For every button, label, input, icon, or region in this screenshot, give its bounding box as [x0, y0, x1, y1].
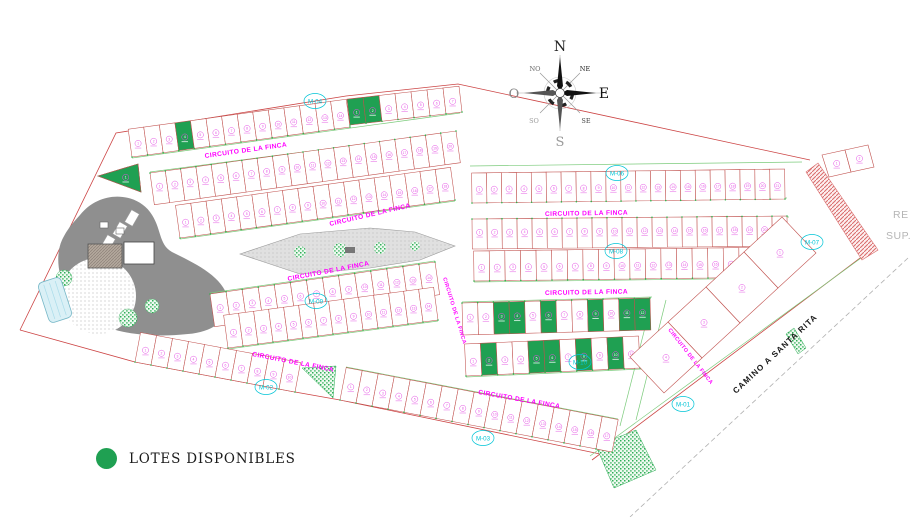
lot-number: 3: [251, 301, 253, 305]
lot-area-text: [291, 126, 297, 127]
lot-area-text: [580, 192, 586, 193]
lot-area-text: [470, 365, 476, 366]
lot-number: 2: [366, 388, 368, 392]
survey-tick: [363, 143, 365, 145]
lot-number: 3: [703, 321, 705, 325]
survey-tick: [739, 199, 741, 201]
lot-area-text: [275, 330, 281, 331]
survey-tick: [520, 280, 522, 282]
lot-area-text: [353, 117, 359, 118]
lot-area-text: [449, 106, 455, 107]
lot-number: 12: [397, 308, 401, 312]
survey-tick: [707, 277, 709, 279]
lot-area-text: [410, 312, 416, 313]
lot-area-text: [856, 163, 862, 164]
lot-number: 2: [161, 351, 163, 355]
lot-number: 10: [609, 312, 613, 316]
lot-area-text: [230, 336, 236, 337]
lot-area-text: [386, 159, 392, 160]
survey-tick: [582, 279, 584, 281]
survey-tick: [576, 370, 578, 372]
survey-tick: [621, 217, 623, 219]
lot-area-text: [572, 434, 578, 435]
street-label-circuito: CIRCUITO DE LA FINCA: [545, 210, 628, 218]
lot-number: 8: [246, 127, 248, 131]
survey-tick: [524, 301, 526, 303]
lot-number: 10: [367, 312, 371, 316]
edge-text-line2: SUP.: [886, 230, 911, 242]
survey-tick: [317, 335, 319, 337]
lot-number: 18: [418, 149, 422, 153]
lot-number: 4: [524, 230, 526, 234]
lot-number: 4: [665, 356, 667, 360]
survey-tick: [273, 284, 275, 286]
lot-number: 11: [509, 416, 513, 420]
lot-number: 10: [493, 413, 497, 417]
lot-number: 7: [446, 403, 448, 407]
lot-number: 10: [321, 201, 325, 205]
survey-tick: [294, 391, 296, 393]
survey-tick: [504, 280, 506, 282]
lot-number: 8: [266, 170, 268, 174]
lot-number: 12: [307, 118, 311, 122]
lot-area-text: [536, 236, 542, 237]
survey-tick: [318, 149, 320, 151]
survey-tick: [338, 275, 340, 277]
survey-tick: [365, 122, 367, 124]
lot-area-text: [491, 193, 497, 194]
lot-area-text: [198, 224, 204, 225]
lot-area-text: [521, 236, 527, 237]
lot-number: 1: [185, 220, 187, 224]
lot-number: 7: [574, 264, 576, 268]
lot-number: 12: [643, 229, 647, 233]
lot-number: 1: [356, 111, 358, 115]
lot-number: 19: [748, 228, 752, 232]
lot-area-text: [561, 319, 567, 320]
survey-tick: [347, 331, 349, 333]
lot-number: 7: [567, 355, 569, 359]
lot-area-text: [508, 422, 514, 423]
survey-tick: [198, 373, 200, 375]
survey-tick: [257, 343, 259, 345]
survey-tick: [149, 172, 151, 174]
lot-area-text: [320, 207, 326, 208]
lot-area-text: [588, 270, 594, 271]
lot-area-text: [290, 328, 296, 329]
survey-tick: [272, 155, 274, 157]
survey-tick: [602, 298, 604, 300]
lot-number: 8: [338, 316, 340, 320]
survey-tick: [209, 293, 211, 295]
lot-area-text: [122, 182, 128, 183]
lot-number: 14: [671, 185, 675, 189]
lot-area-text: [270, 378, 276, 379]
survey-tick: [635, 200, 637, 202]
lot-number: 15: [573, 428, 577, 432]
legend-label: LOTES DISPONIBLES: [129, 451, 296, 467]
lot-number: 13: [323, 116, 327, 120]
lot-number: 15: [372, 155, 376, 159]
lot-number: 4: [278, 324, 280, 328]
survey-tick: [563, 442, 565, 444]
survey-tick: [166, 367, 168, 369]
lot-area-text: [565, 361, 571, 362]
lot-number: 8: [462, 407, 464, 411]
survey-tick: [332, 333, 334, 335]
survey-tick: [536, 279, 538, 281]
lot-area-text: [260, 332, 266, 333]
tree: [374, 242, 386, 254]
survey-tick: [439, 201, 441, 203]
survey-tick: [256, 139, 258, 141]
survey-tick: [179, 237, 181, 239]
lot-area-text: [297, 300, 303, 301]
survey-tick: [680, 200, 682, 202]
lot-number: 3: [177, 354, 179, 358]
lot-area-text: [506, 236, 512, 237]
lot-number: 3: [189, 180, 191, 184]
lot-number: 2: [488, 359, 490, 363]
survey-tick: [413, 117, 415, 119]
survey-tick: [381, 120, 383, 122]
compass-e: E: [599, 86, 609, 102]
lot-number: 7: [250, 172, 252, 176]
survey-tick: [354, 273, 356, 275]
survey-tick: [618, 298, 620, 300]
lot-area-text: [656, 235, 662, 236]
lot-area-text: [476, 416, 482, 417]
survey-tick: [551, 279, 553, 281]
survey-tick: [397, 119, 399, 121]
lot-number: 10: [288, 375, 292, 379]
lot-number: 6: [430, 400, 432, 404]
survey-tick: [696, 216, 698, 218]
survey-tick: [302, 133, 304, 135]
lot-number: 17: [403, 151, 407, 155]
survey-tick: [489, 280, 491, 282]
lot-number: 12: [641, 311, 645, 315]
survey-tick: [560, 371, 562, 373]
lot-area-text: [433, 107, 439, 108]
survey-tick: [499, 430, 501, 432]
lot-number: 11: [337, 199, 341, 203]
lot-number: 1: [836, 162, 838, 166]
survey-tick: [471, 218, 473, 220]
survey-tick: [429, 115, 431, 117]
survey-tick: [645, 278, 647, 280]
lot-number: 9: [348, 287, 350, 291]
lot-area-text: [197, 139, 203, 140]
lot-number: 6: [554, 230, 556, 234]
lot-area-text: [524, 425, 530, 426]
lot-number: 18: [443, 185, 447, 189]
lot-area-text: [486, 365, 492, 366]
lot-area-text: [279, 174, 285, 175]
lot-number: 11: [627, 186, 631, 190]
lot-number: 7: [241, 366, 243, 370]
survey-tick: [165, 170, 167, 172]
survey-tick: [256, 227, 258, 229]
lot-area-text: [460, 413, 466, 414]
survey-tick: [501, 202, 503, 204]
survey-tick: [318, 130, 320, 132]
lot-area-text: [536, 193, 542, 194]
svg-text:M-10: M-10: [573, 360, 588, 367]
lot-number: 9: [595, 312, 597, 316]
survey-tick: [317, 218, 319, 220]
lot-area-text: [294, 172, 300, 173]
lot-number: 4: [184, 135, 186, 139]
lot-area-text: [476, 194, 482, 195]
lot-area-text: [355, 163, 361, 164]
lot-area-text: [685, 191, 691, 192]
lot-area-text: [190, 363, 196, 364]
lot-number: 7: [569, 230, 571, 234]
lot-area-text: [305, 210, 311, 211]
lot-block: 1234567891011: [465, 336, 641, 377]
survey-tick: [636, 217, 638, 219]
lot-area-text: [588, 437, 594, 438]
lot-number: 5: [543, 265, 545, 269]
lot-number: 5: [420, 103, 422, 107]
lot-area-text: [135, 148, 141, 149]
lot-number: 21: [775, 184, 779, 188]
survey-tick: [769, 198, 771, 200]
lot-area-text: [364, 394, 370, 395]
lot-number: 11: [625, 311, 629, 315]
lot-number: 1: [779, 251, 781, 255]
survey-tick: [515, 433, 517, 435]
lot-area-text: [174, 360, 180, 361]
lot-number: 7: [452, 100, 454, 104]
survey-tick: [434, 261, 436, 263]
lot-number: 4: [520, 357, 522, 361]
lot-number: 10: [613, 229, 617, 233]
survey-tick: [754, 199, 756, 201]
survey-tick: [226, 162, 228, 164]
survey-tick: [162, 152, 164, 154]
lot-area-text: [597, 360, 603, 361]
lot-area-text: [206, 366, 212, 367]
lot-area-text: [410, 284, 416, 285]
lot-area-text: [172, 188, 178, 189]
lot-number: 2: [235, 303, 237, 307]
lot-area-text: [378, 289, 384, 290]
lot-area-text: [286, 381, 292, 382]
lot-number: 13: [411, 278, 415, 282]
lot-area-text: [187, 186, 193, 187]
lot-area-text: [385, 113, 391, 114]
survey-tick: [362, 329, 364, 331]
lot-number: 10: [612, 186, 616, 190]
survey-tick: [150, 364, 152, 366]
survey-tick: [209, 145, 211, 147]
lot-area-text: [701, 327, 707, 328]
lot-block: 1: [98, 164, 141, 192]
lot-area-text: [494, 271, 500, 272]
survey-tick: [598, 279, 600, 281]
lot-number: 12: [395, 281, 399, 285]
lot-area-text: [610, 192, 616, 193]
survey-tick: [595, 448, 597, 450]
lot-area-text: [478, 272, 484, 273]
lot-area-text: [447, 151, 453, 152]
survey-tick: [387, 408, 389, 410]
lot-number: 6: [235, 174, 237, 178]
lot-number: 10: [614, 353, 618, 357]
lot-area-text: [521, 193, 527, 194]
lot-area-text: [581, 236, 587, 237]
survey-tick: [486, 202, 488, 204]
lot-area-text: [394, 287, 400, 288]
compass-ne: NE: [580, 65, 591, 73]
survey-tick: [240, 141, 242, 143]
lot-number: 3: [504, 358, 506, 362]
compass-arm-east: [562, 90, 596, 96]
svg-text:M-06: M-06: [610, 171, 625, 178]
lot-area-text: [335, 205, 341, 206]
lot-number: 11: [292, 120, 296, 124]
lot-number: 9: [262, 125, 264, 129]
survey-tick: [692, 277, 694, 279]
lot-area-text: [681, 269, 687, 270]
block-label: M-01: [672, 397, 694, 412]
lot-area-text: [729, 190, 735, 191]
lot-number: 1: [219, 306, 221, 310]
survey-tick: [445, 113, 447, 115]
lot-number: 10: [295, 166, 299, 170]
compass-s: S: [556, 135, 565, 150]
lot-block: 123456789101112131415161718192021: [471, 169, 786, 204]
survey-tick: [660, 278, 662, 280]
legend: LOTES DISPONIBLES: [96, 448, 296, 469]
survey-tick: [579, 445, 581, 447]
lot-area-text: [337, 120, 343, 121]
lot-number: 7: [568, 186, 570, 190]
survey-tick: [528, 372, 530, 374]
lot-area-text: [530, 320, 536, 321]
lot-number: 13: [341, 159, 345, 163]
lot-number: 5: [538, 187, 540, 191]
lot-area-text: [275, 128, 281, 129]
survey-tick: [349, 126, 351, 128]
survey-tick: [786, 215, 788, 217]
lot-number: 6: [215, 131, 217, 135]
survey-tick: [419, 414, 421, 416]
lot-number: 6: [548, 313, 550, 317]
lot-area-text: [371, 161, 377, 162]
svg-text:M-04: M-04: [308, 99, 323, 106]
lot-area-text: [249, 307, 255, 308]
lot-number: 13: [658, 229, 662, 233]
lot-area-text: [401, 111, 407, 112]
survey-tick: [531, 218, 533, 220]
survey-tick: [651, 216, 653, 218]
survey-tick: [134, 361, 136, 363]
survey-tick: [424, 203, 426, 205]
survey-tick: [210, 164, 212, 166]
survey-tick: [339, 399, 341, 401]
lot-area-text: [401, 157, 407, 158]
lot-number: 3: [388, 107, 390, 111]
survey-tick: [302, 337, 304, 339]
lot-area-text: [395, 314, 401, 315]
survey-tick: [606, 217, 608, 219]
lot-area-text: [492, 419, 498, 420]
clubhouse-annex: [124, 242, 154, 264]
lot-number: 10: [363, 285, 367, 289]
lot-area-text: [274, 214, 280, 215]
lot-area-text: [572, 270, 578, 271]
lot-rows: 1234567891011121314123456712345678910111…: [98, 86, 874, 453]
lot-number: 13: [367, 195, 371, 199]
survey-tick: [676, 278, 678, 280]
lot-area-text: [265, 305, 271, 306]
lot-area-text: [396, 400, 402, 401]
survey-tick: [710, 199, 712, 201]
lot-area-text: [639, 317, 645, 318]
lot-area-text: [759, 190, 765, 191]
street-label-camino: CAMINO A SANTA RITA: [731, 312, 819, 395]
survey-tick: [349, 124, 351, 126]
compass-rose: N S E O NE NO SE SO: [509, 39, 609, 150]
lot-number: 11: [636, 264, 640, 268]
survey-tick: [180, 168, 182, 170]
lot-area-text: [427, 193, 433, 194]
lot-number: 6: [308, 320, 310, 324]
survey-tick: [182, 370, 184, 372]
survey-tick: [471, 202, 473, 204]
survey-tick: [355, 402, 357, 404]
lot-number: 4: [205, 178, 207, 182]
lot-area-text: [281, 303, 287, 304]
edge-text-line1: RE: [893, 209, 909, 221]
survey-tick: [592, 369, 594, 371]
survey-tick: [306, 279, 308, 281]
svg-text:M-02: M-02: [259, 385, 274, 392]
survey-tick: [379, 141, 381, 143]
lot-number: 7: [563, 313, 565, 317]
lot-number: 3: [512, 265, 514, 269]
lot-number: 5: [220, 176, 222, 180]
lot-area-text: [556, 271, 562, 272]
lot-area-text: [309, 169, 315, 170]
lot-number: 8: [583, 186, 585, 190]
lot-number: 12: [641, 186, 645, 190]
lot-area-text: [158, 357, 164, 358]
lot-number: 20: [761, 184, 765, 188]
lot-area-text: [625, 192, 631, 193]
lot-number: 14: [339, 114, 343, 118]
lot-area-text: [202, 184, 208, 185]
lot-number: 1: [472, 359, 474, 363]
lot-area-text: [533, 363, 539, 364]
lot-area-text: [671, 235, 677, 236]
survey-tick: [407, 323, 409, 325]
lot-area-text: [731, 234, 737, 235]
lot-number: 14: [427, 304, 431, 308]
survey-tick: [241, 289, 243, 291]
lot-number: 14: [683, 263, 687, 267]
survey-tick: [516, 218, 518, 220]
lot-area-text: [340, 165, 346, 166]
lot-area-text: [746, 234, 752, 235]
lot-area-text: [612, 359, 618, 360]
survey-tick: [561, 201, 563, 203]
lot-number: 2: [493, 187, 495, 191]
survey-tick: [392, 325, 394, 327]
